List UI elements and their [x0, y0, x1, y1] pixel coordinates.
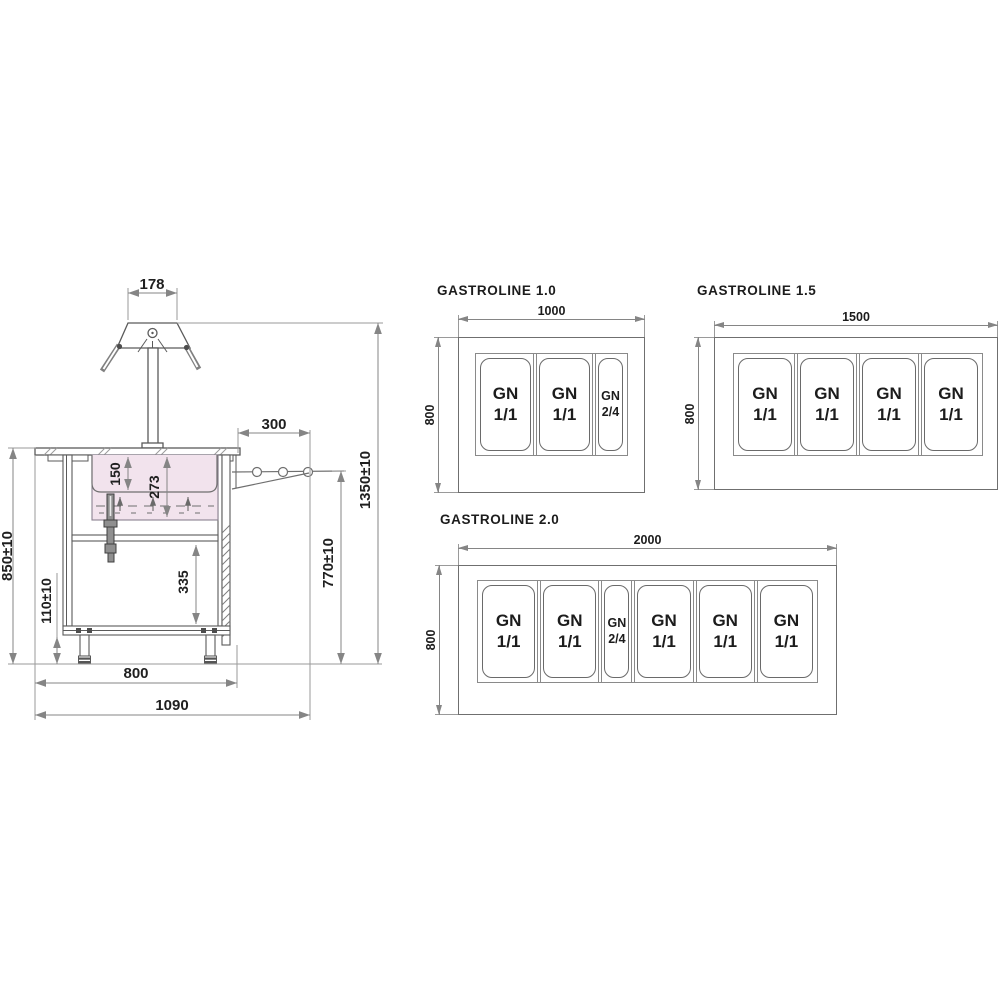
width-dimension-label: 1000 [538, 304, 566, 318]
layout-title: GASTROLINE 1.0 [437, 283, 556, 298]
layout-card-gastroline-1-0: GASTROLINE 1.0 1000 800 GN1/1GN1/1GN2/4 [430, 283, 656, 504]
pan-size: 1/1 [939, 405, 963, 426]
pan-name: GN [557, 611, 583, 632]
pan-divider [598, 581, 602, 682]
pan-name: GN [814, 384, 840, 405]
width-dimension: 2000 [458, 548, 837, 549]
cabinet-wall-left [63, 455, 72, 626]
pan-size: 2/4 [602, 405, 619, 420]
gn-pan: GN1/1 [699, 585, 752, 678]
column-flange [142, 443, 163, 448]
pan-size: 1/1 [713, 632, 737, 653]
layout-card-gastroline-2-0: GASTROLINE 2.0 2000 800 GN1/1GN1/1GN2/4G… [430, 510, 850, 725]
label-body-width: 800 [123, 665, 148, 682]
pan-size: 1/1 [775, 632, 799, 653]
lamp-arm-left [102, 344, 122, 371]
leg-left [79, 635, 91, 663]
label-tray-slide-height: 770±10 [320, 538, 337, 588]
lamp-hub-dot [151, 332, 153, 334]
counter-outline: GN1/1GN1/1GN1/1GN1/1 [714, 337, 998, 490]
gn-pan: GN1/1 [539, 358, 590, 451]
depth-dimension-label: 800 [423, 405, 437, 426]
counter-outline: GN1/1GN1/1GN2/4 [458, 337, 645, 493]
label-pan-depth: 150 [107, 462, 123, 486]
pan-size: 1/1 [558, 632, 582, 653]
lamp-arm-right [184, 345, 199, 369]
pan-size: 1/1 [652, 632, 676, 653]
pan-size: 1/1 [497, 632, 521, 653]
label-tray-slide-depth: 300 [261, 416, 286, 433]
depth-dimension: 800 [698, 337, 699, 490]
pan-size: 1/1 [494, 405, 518, 426]
label-well-depth: 273 [146, 475, 162, 499]
worktop [35, 448, 240, 455]
gn-pan: GN1/1 [800, 358, 854, 451]
pan-divider [631, 581, 635, 682]
cabinet-wall-right [218, 455, 222, 626]
layout-title: GASTROLINE 1.5 [697, 283, 816, 298]
label-plinth-height: 110±10 [38, 578, 54, 624]
label-worktop-height: 850±10 [0, 531, 16, 581]
depth-dimension-label: 800 [424, 630, 438, 651]
pan-divider [533, 354, 537, 455]
leg-right [205, 635, 217, 663]
label-lamp-width: 178 [139, 276, 164, 293]
gn-pan: GN2/4 [598, 358, 623, 451]
pan-name: GN [496, 611, 522, 632]
pan-size: 1/1 [815, 405, 839, 426]
pan-size: 2/4 [608, 632, 625, 647]
gn-pan: GN1/1 [543, 585, 596, 678]
pan-name: GN [938, 384, 964, 405]
pan-name: GN [876, 384, 902, 405]
width-dimension-label: 2000 [634, 533, 662, 547]
gn-pan: GN1/1 [738, 358, 792, 451]
pan-size: 1/1 [753, 405, 777, 426]
pan-name: GN [774, 611, 800, 632]
pan-size: 1/1 [877, 405, 901, 426]
gn-pan: GN1/1 [924, 358, 978, 451]
pan-divider [918, 354, 922, 455]
pan-name: GN [752, 384, 778, 405]
pan-divider [754, 581, 758, 682]
counter-outline: GN1/1GN1/1GN2/4GN1/1GN1/1GN1/1 [458, 565, 837, 715]
pan-strip: GN1/1GN1/1GN1/1GN1/1 [737, 354, 979, 455]
width-dimension: 1000 [458, 319, 645, 320]
well-outline: GN1/1GN1/1GN2/4GN1/1GN1/1GN1/1 [477, 580, 818, 683]
pan-divider [592, 354, 596, 455]
label-overall-height: 1350±10 [357, 451, 374, 509]
depth-dimension: 800 [438, 337, 439, 493]
support-column [148, 348, 158, 444]
pan-name: GN [651, 611, 677, 632]
pan-strip: GN1/1GN1/1GN2/4 [479, 354, 624, 455]
pan-name: GN [552, 384, 578, 405]
gn-pan: GN1/1 [862, 358, 916, 451]
depth-dimension: 800 [439, 565, 440, 715]
gn-pan: GN2/4 [604, 585, 629, 678]
pan-name: GN [712, 611, 738, 632]
pan-name: GN [608, 616, 627, 631]
depth-dimension-label: 800 [683, 403, 697, 424]
gn-pan: GN1/1 [760, 585, 813, 678]
label-shelf-clearance: 335 [175, 570, 191, 594]
width-dimension: 1500 [714, 325, 998, 326]
pan-divider [693, 581, 697, 682]
pan-divider [537, 581, 541, 682]
pan-name: GN [493, 384, 519, 405]
pan-divider [794, 354, 798, 455]
pan-divider [856, 354, 860, 455]
mid-shelf [72, 535, 218, 541]
layout-card-gastroline-1-5: GASTROLINE 1.5 1500 800 GN1/1GN1/1GN1/1G… [690, 283, 999, 501]
pan-size: 1/1 [553, 405, 577, 426]
layout-title: GASTROLINE 2.0 [440, 512, 559, 527]
well-outline: GN1/1GN1/1GN2/4 [475, 353, 628, 456]
well-outline: GN1/1GN1/1GN1/1GN1/1 [733, 353, 983, 456]
tray-slide [232, 468, 344, 490]
gn-pan: GN1/1 [480, 358, 531, 451]
gn-pan: GN1/1 [482, 585, 535, 678]
pan-strip: GN1/1GN1/1GN2/4GN1/1GN1/1GN1/1 [481, 581, 814, 682]
technical-drawing-page: 178 300 150 273 335 850±10 110±10 770±10… [0, 0, 1000, 1000]
width-dimension-label: 1500 [842, 310, 870, 324]
gn-pan: GN1/1 [637, 585, 690, 678]
heat-lamp-assembly [102, 323, 199, 448]
pan-name: GN [601, 389, 620, 404]
label-overall-width: 1090 [155, 697, 188, 714]
